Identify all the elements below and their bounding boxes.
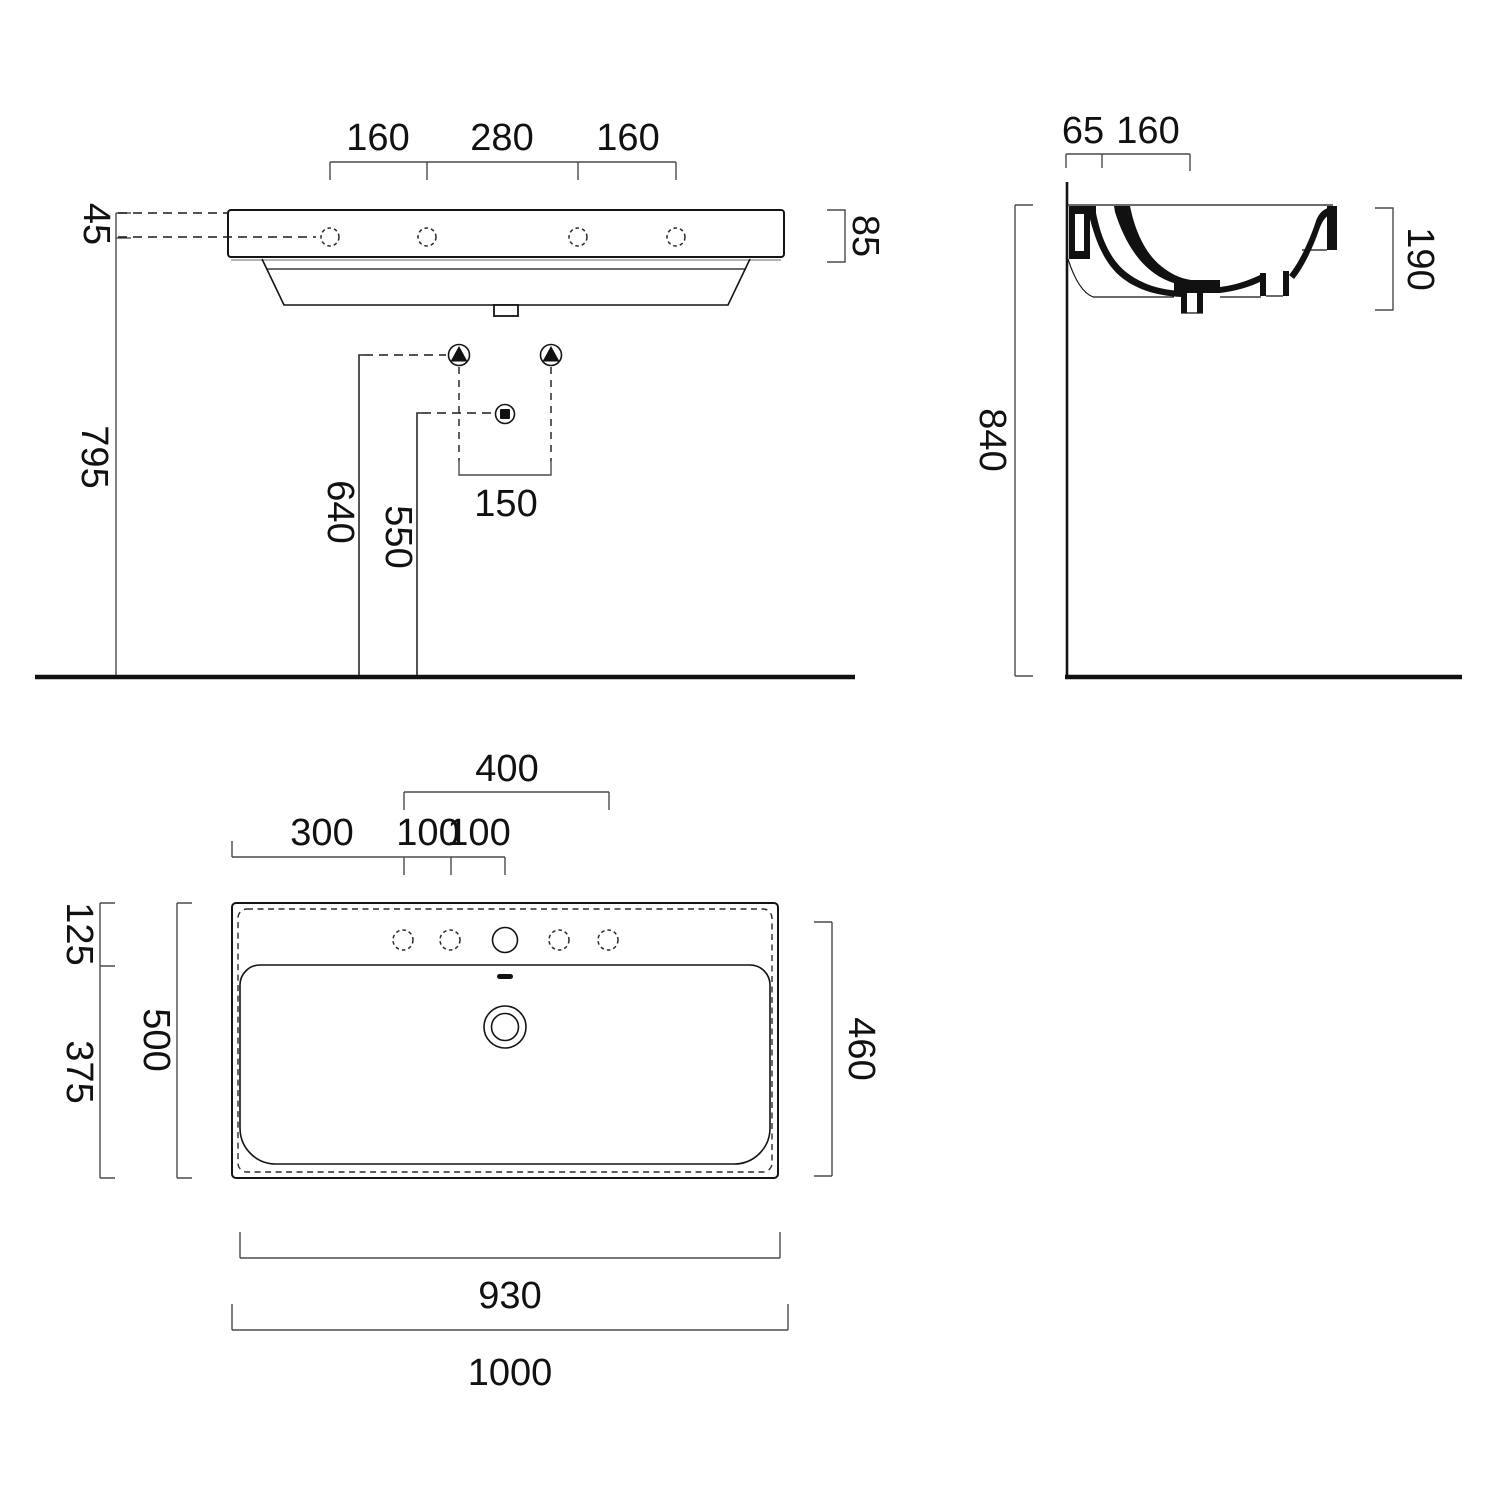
basin-rim-band [228, 210, 784, 257]
supply-spacing-dimension: 150 [459, 461, 551, 525]
dim-label-640: 640 [319, 480, 361, 543]
rim-height-dimension: 85 [827, 210, 886, 262]
dim-label-300: 300 [290, 812, 353, 854]
section-height-dimension: 190 [1375, 208, 1441, 310]
bowl-bottom-band [1220, 274, 1262, 293]
dim-label-930: 930 [478, 1275, 541, 1317]
front-notch-leg [1260, 273, 1266, 296]
front-notch-leg [1283, 271, 1289, 296]
hole-position-dimension: 300 100 100 [232, 812, 511, 875]
basin-plan-outline [232, 903, 778, 1178]
left-height-dimensions: 45 795 [73, 203, 316, 676]
bracket-slot [1075, 214, 1084, 251]
supply-height-dimensions: 640 550 [319, 355, 492, 676]
front-depth-dimension: 460 [814, 922, 882, 1176]
front-wall-band [1289, 208, 1328, 279]
rim-floor-height-dimension: 840 [971, 205, 1033, 676]
total-depth-dimension: 500 [135, 903, 192, 1178]
basin-front-outline [228, 210, 784, 316]
dim-label-190: 190 [1399, 227, 1441, 290]
basin-underside [262, 259, 750, 305]
dim-label-100b: 100 [447, 812, 510, 854]
front-top-dimension: 160 280 160 [330, 117, 676, 180]
dim-label-280: 280 [470, 117, 533, 159]
dim-label-85: 85 [844, 215, 886, 257]
dim-label-1000: 1000 [468, 1352, 553, 1394]
depth-chain-dimension: 125 375 [58, 902, 115, 1178]
drawing-canvas: 160 280 160 85 4 [0, 0, 1500, 1500]
dim-label-840: 840 [971, 408, 1013, 471]
dim-label-500: 500 [135, 1008, 177, 1071]
dim-label-160-right: 160 [596, 117, 659, 159]
overflow-slot [497, 974, 513, 979]
dim-label-65: 65 [1062, 110, 1104, 152]
dim-label-150: 150 [474, 483, 537, 525]
side-section-view: 65 160 [971, 110, 1462, 677]
dim-label-460: 460 [840, 1017, 882, 1080]
total-width-dimension: 1000 [232, 1304, 788, 1394]
dim-label-160-left: 160 [346, 117, 409, 159]
dim-label-125: 125 [58, 902, 100, 965]
dim-label-160-side: 160 [1116, 110, 1179, 152]
waste-outlet-square-icon [500, 409, 510, 419]
dim-label-795: 795 [73, 425, 115, 488]
dim-label-45: 45 [75, 203, 117, 245]
dim-label-550: 550 [377, 505, 419, 568]
inner-width-dimension: 930 [240, 1232, 780, 1317]
dim-label-400: 400 [475, 748, 538, 790]
side-top-dimension: 65 160 [1062, 110, 1190, 171]
connection-symbols [449, 345, 562, 462]
front-elevation-view: 160 280 160 85 4 [35, 117, 886, 677]
water-supply-triangle-icon [543, 346, 560, 362]
water-supply-triangle-icon [451, 346, 468, 362]
plan-view: 400 300 100 100 [58, 748, 882, 1394]
drain-stub [494, 305, 518, 316]
basin-section-profile [1068, 205, 1337, 313]
hole-span-dimension: 400 [404, 748, 609, 810]
front-apron-section [1327, 206, 1337, 250]
washbasin-dimension-drawing: 160 280 160 85 4 [0, 0, 1500, 1500]
dim-label-375: 375 [58, 1040, 100, 1103]
